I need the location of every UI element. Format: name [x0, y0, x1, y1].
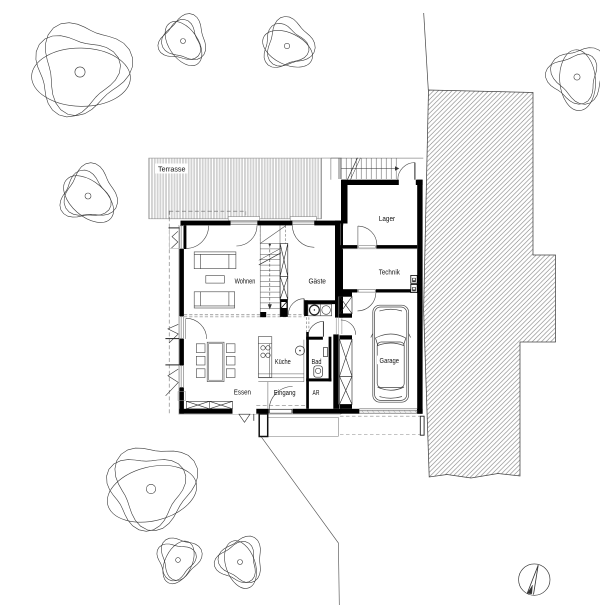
svg-text:Eingang: Eingang	[274, 388, 296, 397]
svg-text:Küche: Küche	[275, 357, 291, 366]
svg-text:Terrasse: Terrasse	[158, 165, 186, 174]
svg-text:AR: AR	[313, 388, 320, 397]
svg-text:Lager: Lager	[379, 214, 396, 223]
svg-text:Essen: Essen	[234, 388, 251, 397]
svg-text:Gäste: Gäste	[308, 277, 326, 286]
svg-text:Technik: Technik	[379, 268, 400, 277]
svg-text:Garage: Garage	[380, 356, 400, 365]
svg-text:Wohnen: Wohnen	[235, 277, 256, 286]
svg-text:Bad: Bad	[312, 357, 322, 366]
